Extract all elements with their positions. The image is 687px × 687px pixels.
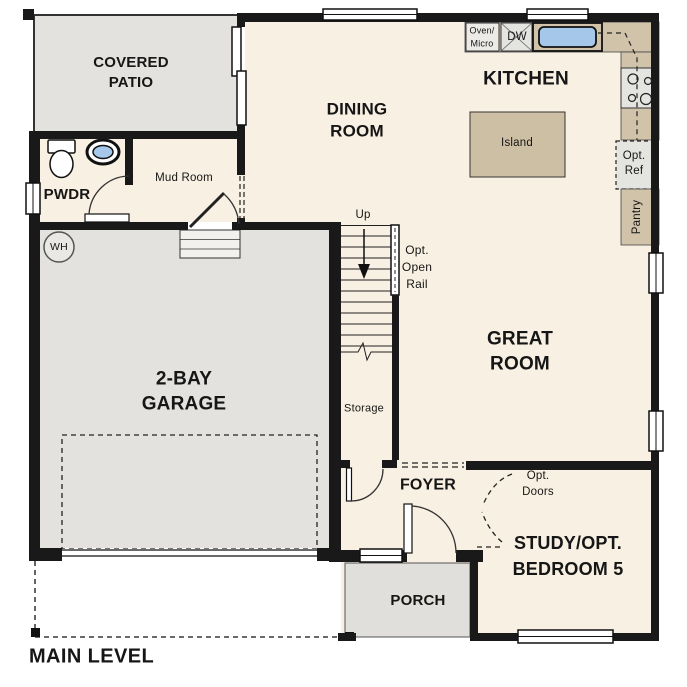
water-heater-label: WH [50,241,68,253]
opt-doors-label: Opt. Doors [522,468,554,500]
great-room-label: GREAT ROOM [487,327,553,376]
powder-label: PWDR [44,186,91,204]
porch-label: PORCH [390,592,445,610]
level-title: MAIN LEVEL [29,646,154,669]
dining-room-label: DINING ROOM [327,99,388,144]
stairs-up-label: Up [355,209,370,223]
opt-open-rail-label: Opt. Open Rail [402,242,432,292]
dishwasher-label: DW [507,31,527,45]
study-label: STUDY/OPT. BEDROOM 5 [513,530,624,582]
storage-door-leaf [347,468,352,501]
driveway-corner-post [31,628,40,637]
powder-sink-basin [93,146,113,159]
foyer-label: FOYER [400,477,456,496]
mudroom-steps [180,230,240,258]
pantry-label: Pantry [631,200,645,234]
mud-room-label: Mud Room [155,172,213,186]
front-door-leaf [404,504,412,553]
garage-label: 2-BAY GARAGE [142,367,227,416]
covered-patio-label: COVERED PATIO [93,53,169,94]
opt-ref-label: Opt. Ref [623,149,646,179]
powder-door-leaf [85,214,129,222]
kitchen-label: KITCHEN [483,68,569,93]
oven-micro-label: Oven/ Micro [469,24,494,49]
mudroom-opening-gap [237,175,245,220]
floor-plan: COVERED PATIO DINING ROOM KITCHEN GREAT … [0,0,687,687]
toilet-bowl [50,151,73,178]
kitchen-sink [539,27,596,47]
storage-label: Storage [344,403,384,416]
island-label: Island [501,137,533,151]
